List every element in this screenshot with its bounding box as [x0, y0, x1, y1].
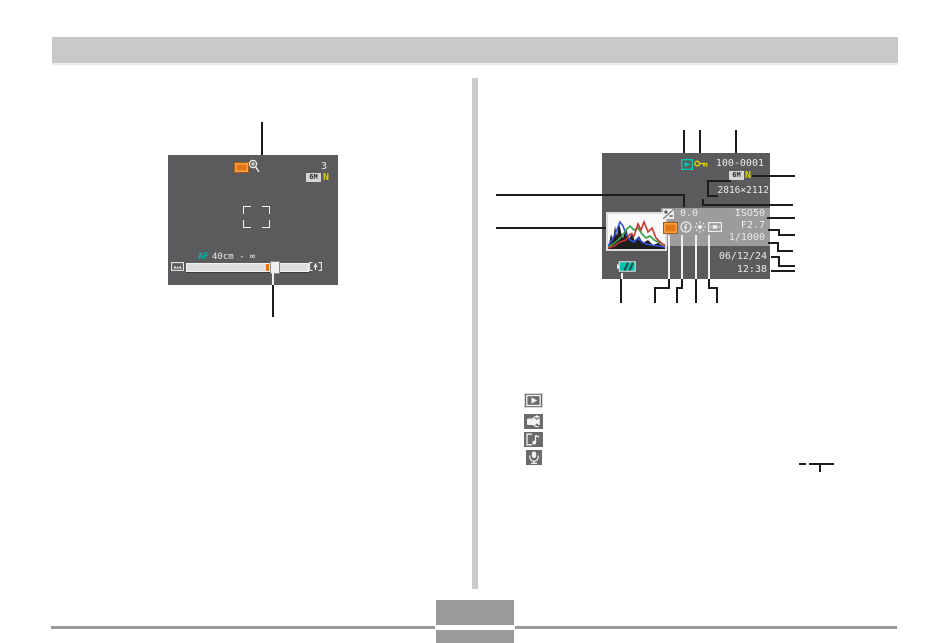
zoom-wide-icon — [171, 262, 184, 271]
af-label: AF — [198, 252, 209, 262]
page-number-block-bottom — [436, 630, 514, 643]
bracket-quality-bottom — [707, 195, 718, 197]
callout-ev-horiz — [496, 194, 684, 196]
flash-mode-icon — [680, 221, 692, 233]
callout-battery — [620, 279, 622, 303]
voice-record-icon — [526, 450, 542, 465]
page-number-block-top — [436, 600, 514, 625]
callout-histogram — [496, 227, 606, 229]
callout-metering-inner — [708, 235, 710, 279]
crop-mark-dash — [799, 463, 806, 465]
left-monitor-screen: 3 6M N AF 40cm - ∞ — [168, 155, 338, 285]
image-size-badge: 6M — [306, 173, 321, 182]
metering-mode-icon — [708, 222, 722, 232]
right-monitor-screen: 100-0001 6M N 2816×2112 0.0 — [602, 153, 770, 279]
callout-zoom-indicator — [272, 285, 274, 317]
time-value: 12:38 — [737, 265, 767, 275]
zoom-bar-orange-mark — [266, 264, 269, 271]
column-divider — [472, 78, 478, 589]
bracket-quality-top — [707, 180, 731, 182]
resolution-value: 2816×2112 — [718, 186, 769, 196]
audio-snapshot-icon — [524, 432, 543, 447]
remaining-capacity: 3 — [321, 162, 327, 172]
top-header-bar — [52, 37, 898, 65]
callout-flash-inner — [681, 235, 683, 279]
quality-mode-normal: N — [323, 173, 329, 183]
callout-shutter-c — [777, 250, 793, 252]
callout-aperture-c — [778, 234, 795, 236]
image-size-badge: 6M — [729, 171, 744, 180]
callout-wb — [695, 279, 697, 303]
snapshot-mode-icon — [234, 162, 249, 173]
digital-zoom-icon — [248, 159, 261, 174]
file-number: 100-0001 — [716, 159, 764, 169]
ev-compensation-icon — [663, 209, 674, 219]
callout-metering-c — [716, 287, 718, 303]
callout-snapshot-b — [654, 287, 670, 289]
protect-key-icon — [694, 159, 708, 169]
ev-value: 0.0 — [680, 209, 698, 219]
crop-mark-horiz — [809, 463, 834, 465]
callout-protect-icon — [699, 130, 701, 153]
footer-rule-right — [515, 626, 897, 629]
callout-flash-c — [676, 287, 678, 303]
histogram-thumbnail — [606, 212, 667, 251]
snapshot-icon — [663, 222, 678, 234]
crop-mark-vert — [819, 463, 821, 472]
callout-resolution-horiz — [702, 204, 793, 206]
date-value: 06/12/24 — [719, 252, 767, 262]
manual-page: 3 6M N AF 40cm - ∞ — [0, 0, 950, 643]
callout-date-c — [778, 265, 795, 267]
snapshot-playback-icon — [524, 393, 543, 408]
focus-range: 40cm - ∞ — [212, 252, 255, 262]
callout-snapshot-inner — [668, 235, 670, 279]
callout-time — [771, 270, 795, 272]
callout-ev-vert — [683, 194, 685, 207]
quality-mode-normal: N — [745, 171, 751, 181]
callout-quality-n — [752, 175, 795, 177]
footer-rule-left — [51, 626, 435, 629]
callout-wb-inner — [695, 235, 697, 279]
movie-playback-icon — [524, 414, 543, 429]
callout-playback-icon — [683, 130, 685, 153]
white-balance-icon — [694, 221, 706, 233]
zoom-bar — [186, 263, 309, 272]
battery-level-icon — [617, 261, 636, 272]
iso-value: ISO50 — [735, 209, 765, 219]
zoom-tele-icon — [309, 262, 322, 271]
playback-mode-icon — [681, 159, 693, 170]
callout-iso — [767, 217, 795, 219]
callout-zoom-indicator-inner — [272, 272, 274, 285]
callout-file-number — [735, 130, 737, 153]
callout-digital-zoom — [261, 122, 263, 159]
aperture-value: F2.7 — [741, 221, 765, 231]
callout-snapshot-c — [654, 287, 656, 303]
shutter-speed-value: 1/1000 — [729, 233, 765, 243]
